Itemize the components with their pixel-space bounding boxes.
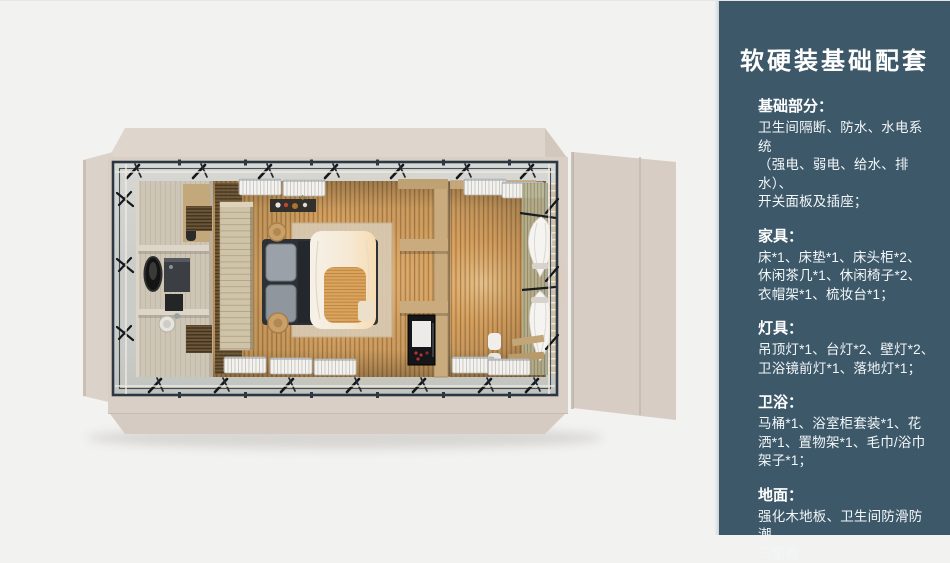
pillow [266,244,296,281]
section-bathroom: 卫浴： 马桶*1、浴室柜套装*1、花 洒*1、置物架*1、毛巾/浴巾 架子*1； [758,393,936,471]
louver-rack-bottom [186,325,212,353]
bathroom [136,181,213,377]
section-heading: 灯具： [758,319,936,338]
section-body: 强化木地板、卫生间防滑防潮 石塑板； [758,508,936,563]
mini-fridge [408,315,435,365]
louver-rack-top [186,206,212,231]
section-heading: 基础部分： [758,97,936,116]
cushion [358,301,374,321]
section-heading: 地面： [758,486,936,505]
section-lighting: 灯具： 吊顶灯*1、台灯*2、壁灯*2、 卫浴镜前灯*1、落地灯*1； [758,319,936,378]
section-list: 基础部分： 卫生间隔断、防水、水电系统 （强电、弱电、给水、排水）、 开关面板及… [758,97,936,563]
section-furniture: 家具： 床*1、床垫*1、床头柜*2、 休闲茶几*1、休闲椅子*2、 衣帽架*1… [758,227,936,305]
section-body: 吊顶灯*1、台灯*2、壁灯*2、 卫浴镜前灯*1、落地灯*1； [758,341,936,378]
section-body: 卫生间隔断、防水、水电系统 （强电、弱电、给水、排水）、 开关面板及插座； [758,119,936,212]
panel-title: 软硬装基础配套 [740,47,936,77]
side-door-panel [573,152,676,420]
section-basics: 基础部分： 卫生间隔断、防水、水电系统 （强电、弱电、给水、排水）、 开关面板及… [758,97,936,212]
rolled-towel [488,333,501,350]
section-body: 马桶*1、浴室柜套装*1、花 洒*1、置物架*1、毛巾/浴巾 架子*1； [758,415,936,471]
slide: { "panel": { "title": "软硬装基础配套", "sectio… [0,0,950,534]
section-body: 床*1、床垫*1、床头柜*2、 休闲茶几*1、休闲椅子*2、 衣帽架*1、梳妆台… [758,249,936,305]
floorplan-svg [0,1,716,535]
info-panel: 软硬装基础配套 基础部分： 卫生间隔断、防水、水电系统 （强电、弱电、给水、排水… [719,1,950,535]
wardrobe [220,202,253,350]
section-flooring: 地面： 强化木地板、卫生间防滑防潮 石塑板； [758,486,936,563]
section-heading: 卫浴： [758,393,936,412]
floorplan-render [0,1,716,535]
section-heading: 家具： [758,227,936,246]
